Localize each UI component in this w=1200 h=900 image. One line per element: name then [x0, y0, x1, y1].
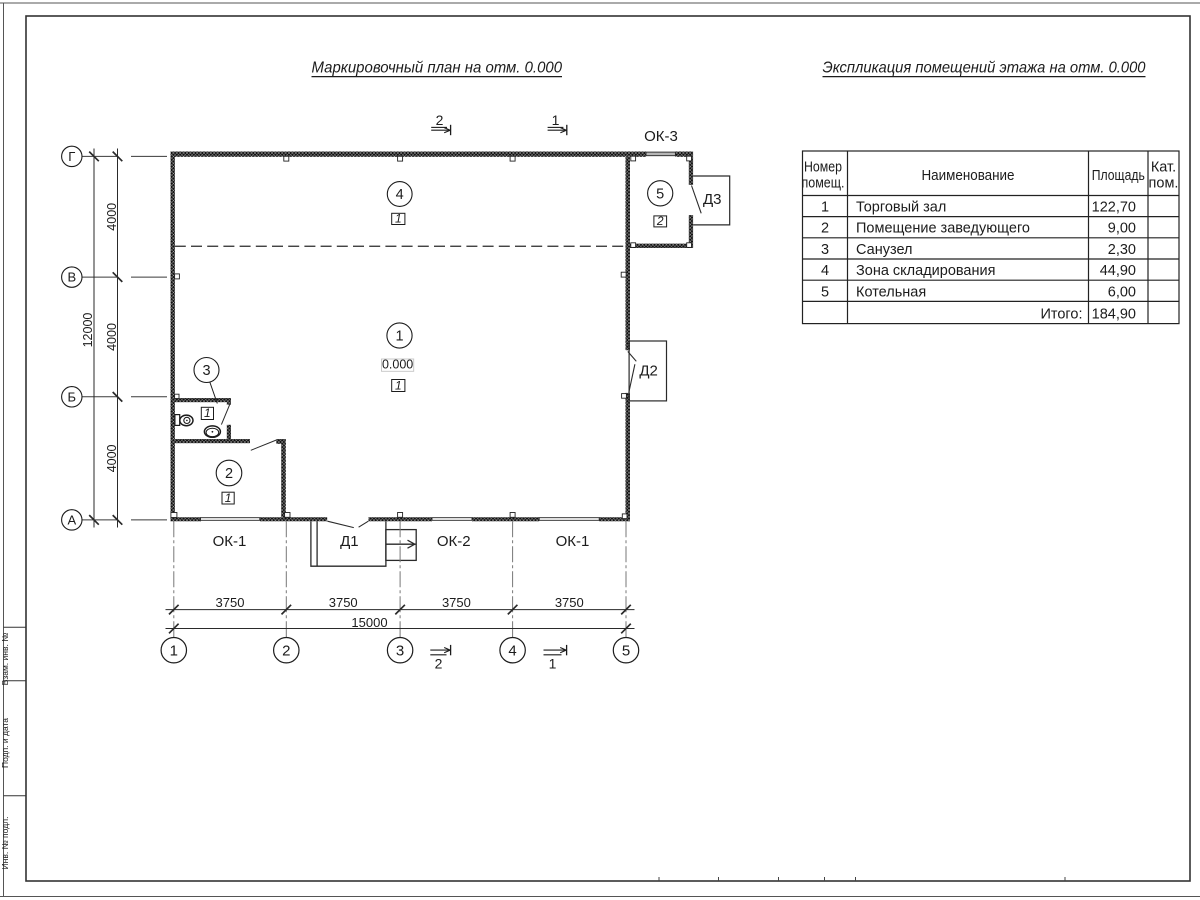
- svg-text:Подп. и дата: Подп. и дата: [0, 718, 10, 768]
- svg-text:Котельная: Котельная: [856, 284, 926, 300]
- svg-text:2: 2: [435, 656, 443, 672]
- svg-text:5: 5: [821, 284, 829, 300]
- svg-text:1: 1: [170, 642, 178, 659]
- svg-text:3750: 3750: [216, 595, 245, 610]
- svg-text:4: 4: [821, 263, 829, 279]
- svg-text:1: 1: [225, 491, 232, 505]
- svg-text:ОК-1: ОК-1: [213, 533, 247, 550]
- svg-text:9,00: 9,00: [1108, 221, 1136, 237]
- svg-text:4000: 4000: [105, 203, 119, 231]
- svg-text:ОК-1: ОК-1: [556, 533, 590, 550]
- svg-text:Г: Г: [68, 149, 75, 164]
- svg-text:помещ.: помещ.: [802, 176, 845, 192]
- svg-text:Экспликация помещений этажа на: Экспликация помещений этажа на отм. 0.00…: [823, 60, 1146, 77]
- svg-text:Санузел: Санузел: [856, 242, 913, 258]
- svg-text:пом.: пом.: [1149, 176, 1179, 192]
- svg-text:5: 5: [622, 642, 630, 659]
- svg-text:Взам. инв. №: Взам. инв. №: [0, 633, 10, 686]
- svg-text:184,90: 184,90: [1092, 306, 1136, 322]
- svg-text:15000: 15000: [351, 615, 387, 630]
- svg-text:2: 2: [282, 642, 290, 659]
- svg-text:Маркировочный план на отм. 0.0: Маркировочный план на отм. 0.000: [312, 60, 563, 77]
- svg-text:Б: Б: [68, 389, 77, 404]
- svg-text:Д1: Д1: [340, 533, 359, 550]
- svg-text:1: 1: [204, 406, 211, 420]
- svg-text:Помещение заведующего: Помещение заведующего: [856, 221, 1030, 237]
- svg-text:2: 2: [225, 466, 233, 482]
- svg-text:3: 3: [821, 242, 829, 258]
- svg-text:44,90: 44,90: [1100, 263, 1136, 279]
- svg-text:Д3: Д3: [703, 191, 722, 208]
- svg-text:2: 2: [656, 214, 664, 228]
- svg-text:2: 2: [821, 221, 829, 237]
- svg-text:Номер: Номер: [804, 160, 842, 176]
- svg-text:В: В: [67, 270, 76, 285]
- svg-text:2: 2: [436, 112, 444, 128]
- svg-text:4: 4: [508, 642, 516, 659]
- svg-text:Д2: Д2: [639, 362, 658, 379]
- svg-text:1: 1: [395, 212, 402, 226]
- svg-text:ОК-3: ОК-3: [644, 128, 678, 145]
- svg-text:1: 1: [549, 656, 557, 672]
- svg-text:Наименование: Наименование: [922, 168, 1015, 184]
- svg-text:1: 1: [395, 378, 402, 392]
- svg-text:4000: 4000: [105, 444, 119, 472]
- svg-text:Торговый зал: Торговый зал: [856, 200, 946, 216]
- svg-text:А: А: [67, 513, 76, 528]
- svg-text:Инв. № подл.: Инв. № подл.: [0, 817, 10, 870]
- svg-text:Итого:: Итого:: [1040, 306, 1082, 322]
- svg-text:4: 4: [396, 187, 404, 203]
- svg-text:ОК-2: ОК-2: [437, 533, 471, 550]
- svg-text:1: 1: [821, 200, 829, 216]
- svg-text:3750: 3750: [442, 595, 471, 610]
- svg-text:Зона складирования: Зона складирования: [856, 263, 995, 279]
- svg-text:1: 1: [395, 329, 403, 345]
- svg-text:1: 1: [552, 112, 560, 128]
- svg-text:3: 3: [202, 363, 210, 379]
- svg-text:12000: 12000: [81, 313, 95, 348]
- svg-text:122,70: 122,70: [1092, 200, 1136, 216]
- svg-text:5: 5: [656, 186, 664, 202]
- svg-text:4000: 4000: [105, 323, 119, 351]
- svg-text:2,30: 2,30: [1108, 242, 1136, 258]
- svg-text:6,00: 6,00: [1108, 284, 1136, 300]
- svg-text:Кат.: Кат.: [1151, 160, 1176, 176]
- svg-text:3750: 3750: [555, 595, 584, 610]
- svg-text:3: 3: [396, 642, 404, 659]
- svg-text:3750: 3750: [329, 595, 358, 610]
- svg-text:Площадь: Площадь: [1092, 168, 1145, 184]
- svg-text:0.000: 0.000: [382, 358, 413, 372]
